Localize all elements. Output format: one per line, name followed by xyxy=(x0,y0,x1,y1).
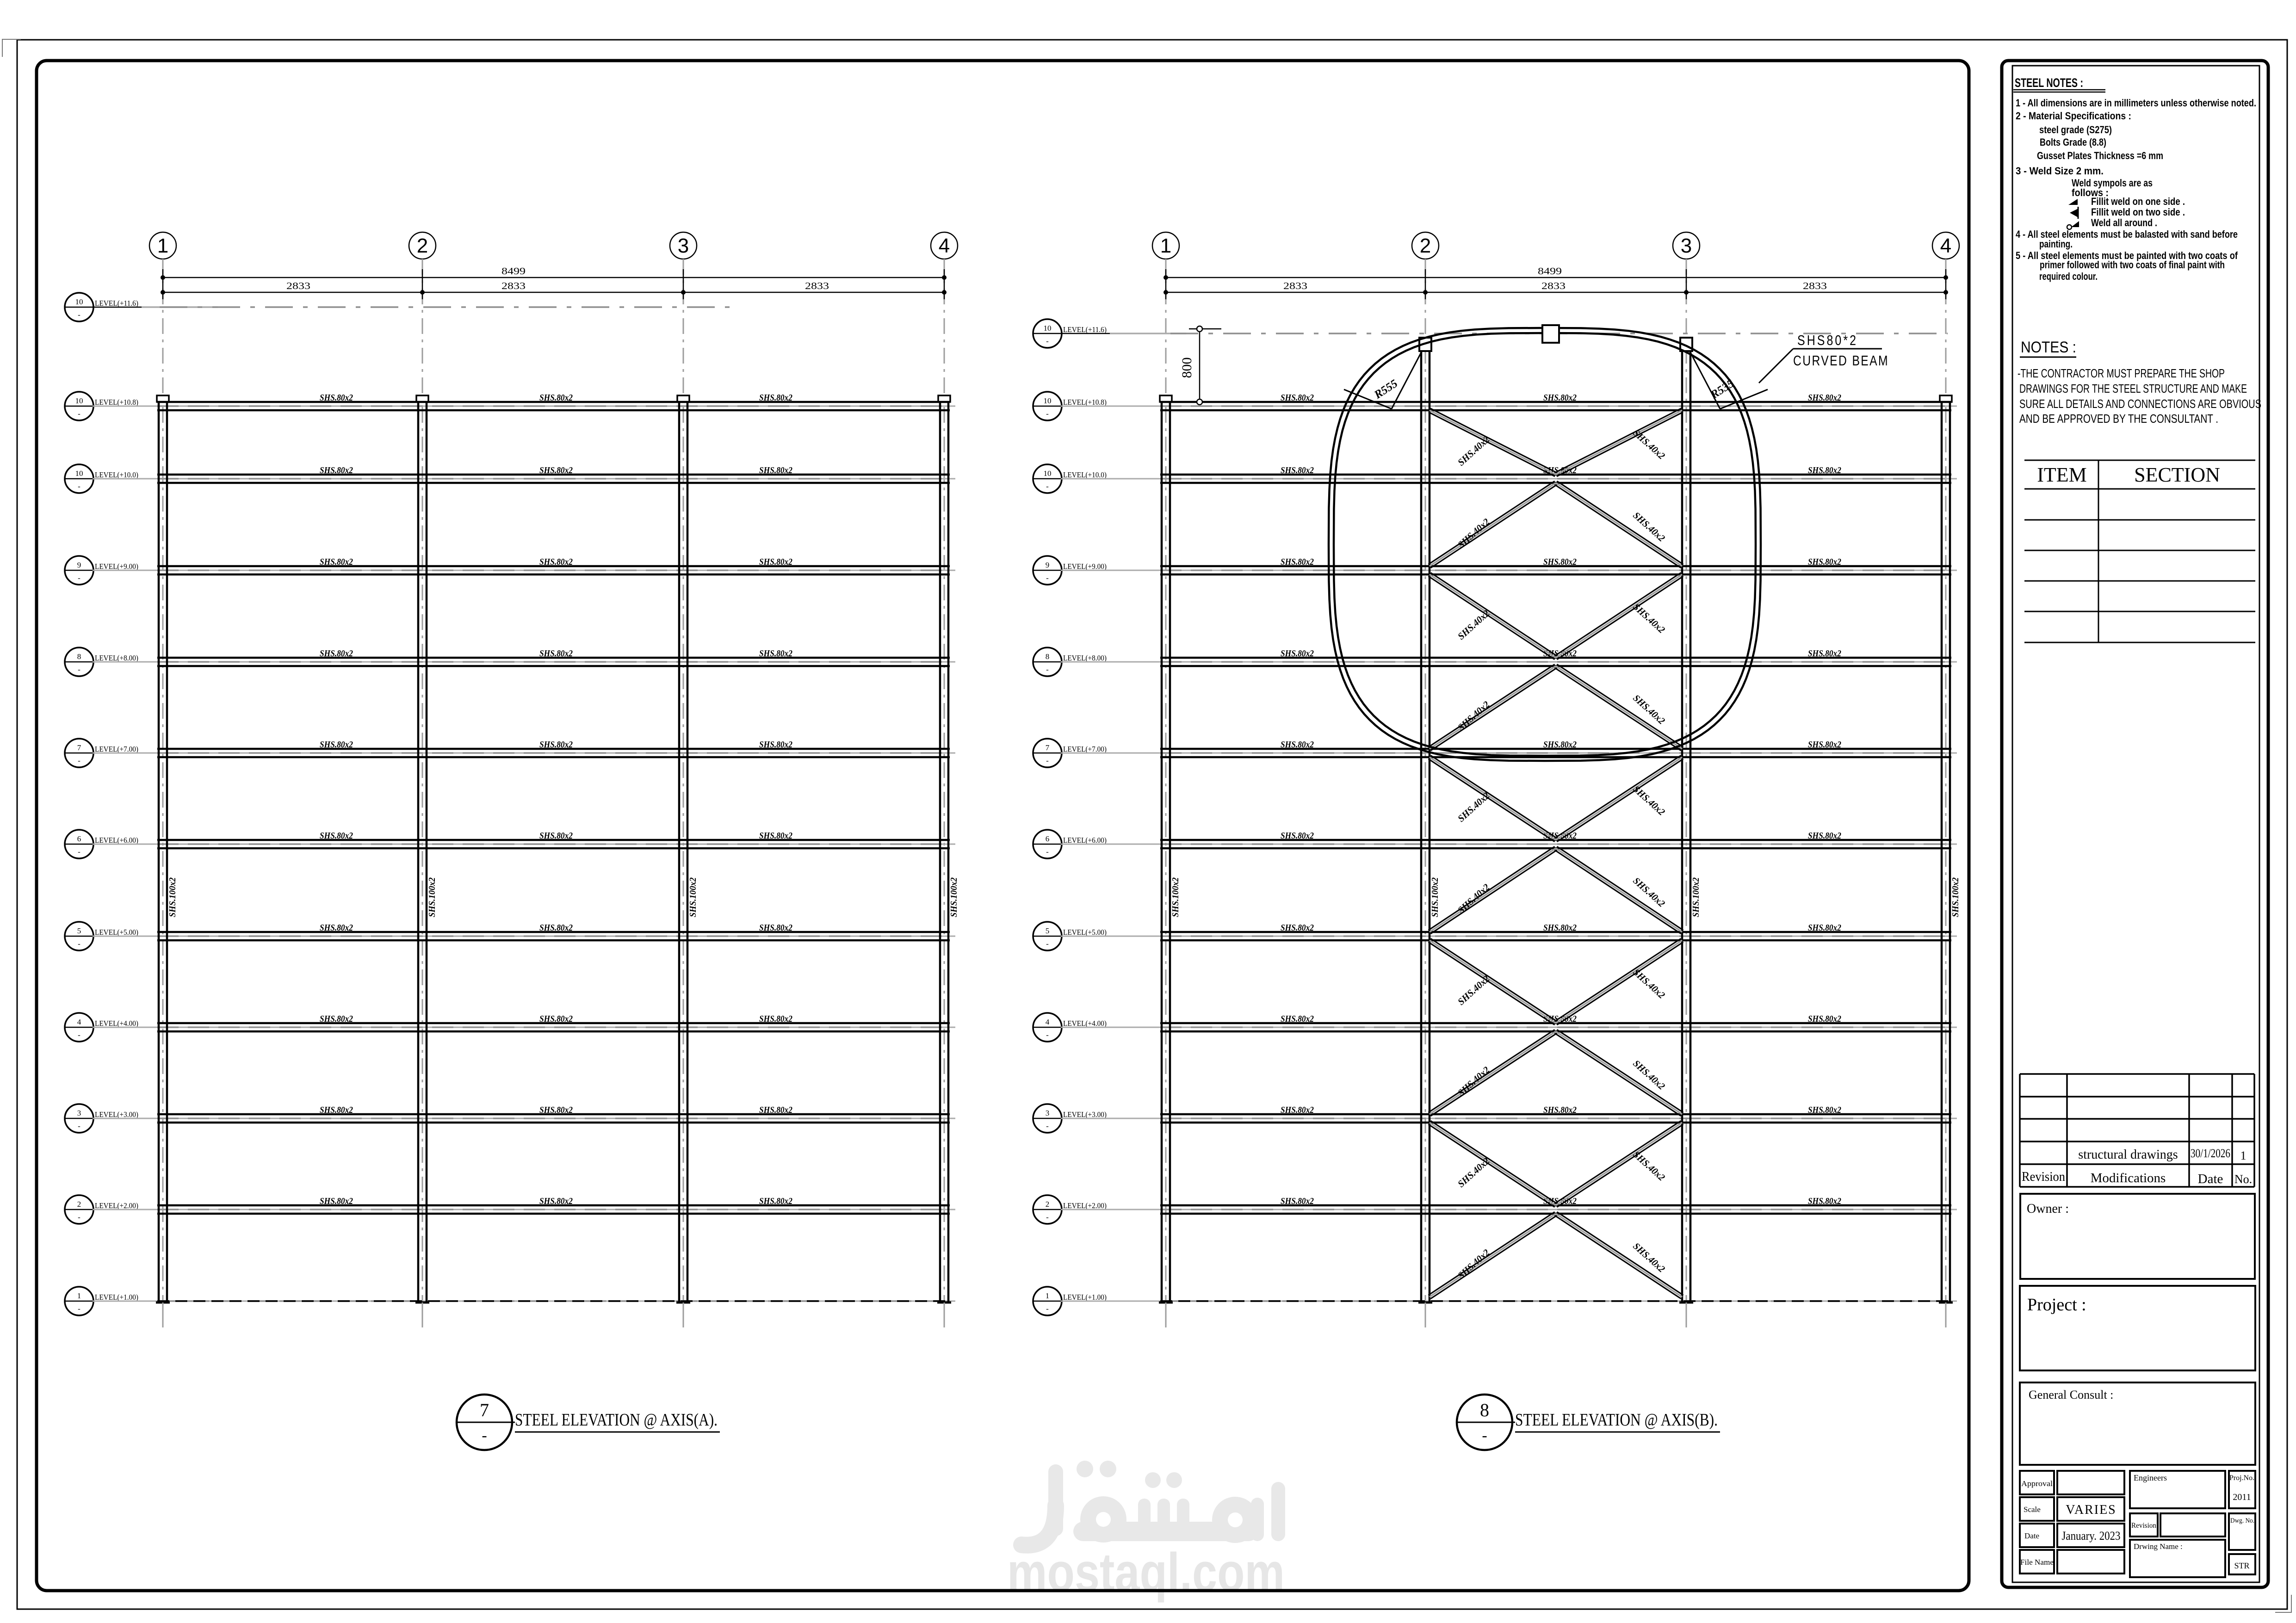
svg-text:SHS.80x2: SHS.80x2 xyxy=(759,831,792,841)
svg-text:-: - xyxy=(78,1304,80,1313)
svg-text:LEVEL(+9.00): LEVEL(+9.00) xyxy=(95,562,138,571)
svg-text:2: 2 xyxy=(1046,1200,1050,1209)
svg-text:LEVEL(+4.00): LEVEL(+4.00) xyxy=(95,1019,138,1028)
svg-text:-: - xyxy=(78,1122,80,1130)
svg-text:SHS.80x2: SHS.80x2 xyxy=(1808,557,1841,567)
svg-text:7: 7 xyxy=(77,743,81,752)
svg-text:-: - xyxy=(78,847,80,856)
svg-text:-: - xyxy=(1046,847,1049,856)
svg-text:SHS.100x2: SHS.100x2 xyxy=(1170,877,1181,917)
svg-text:SHS.100x2: SHS.100x2 xyxy=(167,877,178,917)
svg-text:LEVEL(+5.00): LEVEL(+5.00) xyxy=(1063,928,1107,937)
svg-text:SHS.80x2: SHS.80x2 xyxy=(320,393,353,403)
svg-text:SHS.80x2: SHS.80x2 xyxy=(1808,393,1841,403)
svg-text:LEVEL(+2.00): LEVEL(+2.00) xyxy=(95,1201,138,1210)
svg-text:Engineers: Engineers xyxy=(2134,1473,2167,1482)
svg-text:SHS.80x2: SHS.80x2 xyxy=(320,1014,353,1024)
svg-text:-: - xyxy=(1046,756,1049,765)
svg-text:LEVEL(+11.6): LEVEL(+11.6) xyxy=(95,299,138,308)
svg-text:2011: 2011 xyxy=(2233,1492,2251,1502)
svg-text:SHS.100x2: SHS.100x2 xyxy=(949,877,959,917)
svg-text:SHS.80x2: SHS.80x2 xyxy=(1543,923,1577,933)
svg-text:SHS.80x2: SHS.80x2 xyxy=(320,465,353,475)
svg-text:8: 8 xyxy=(1480,1400,1489,1420)
svg-text:SHS.80x2: SHS.80x2 xyxy=(1281,831,1314,841)
svg-text:2833: 2833 xyxy=(1283,280,1307,291)
svg-text:1: 1 xyxy=(1160,235,1171,257)
svg-text:File Name: File Name xyxy=(2020,1558,2054,1567)
svg-text:SHS.80x2: SHS.80x2 xyxy=(759,557,792,567)
svg-text:SHS.80x2: SHS.80x2 xyxy=(1281,393,1314,403)
svg-text:9: 9 xyxy=(77,561,81,569)
svg-text:SHS.80x2: SHS.80x2 xyxy=(1281,740,1314,750)
svg-text:SHS.80x2: SHS.80x2 xyxy=(539,1105,573,1115)
svg-text:Dwg. No.: Dwg. No. xyxy=(2230,1517,2254,1524)
svg-text:SHS.80x2: SHS.80x2 xyxy=(1808,923,1841,933)
svg-text:2833: 2833 xyxy=(1803,280,1827,291)
svg-text:Fillit weld on two side .: Fillit weld on two side . xyxy=(2091,206,2185,218)
svg-text:-: - xyxy=(1046,1031,1049,1039)
svg-text:January. 2023: January. 2023 xyxy=(2062,1529,2121,1543)
svg-text:2833: 2833 xyxy=(501,280,526,291)
svg-text:General Consult :: General Consult : xyxy=(2029,1388,2113,1401)
svg-text:VARIES: VARIES xyxy=(2066,1503,2117,1517)
svg-text:LEVEL(+7.00): LEVEL(+7.00) xyxy=(95,745,138,753)
svg-text:Bolts Grade (8.8): Bolts Grade (8.8) xyxy=(2040,136,2106,148)
svg-text:-: - xyxy=(1482,1427,1487,1444)
svg-text:SHS.80x2: SHS.80x2 xyxy=(1281,1014,1314,1024)
svg-text:SHS.80x2: SHS.80x2 xyxy=(759,923,792,933)
svg-text:-: - xyxy=(1046,574,1049,582)
svg-text:-: - xyxy=(1046,1304,1049,1313)
svg-text:SHS.80x2: SHS.80x2 xyxy=(320,923,353,933)
svg-text:SHS.80x2: SHS.80x2 xyxy=(759,393,792,403)
svg-text:LEVEL(+1.00): LEVEL(+1.00) xyxy=(1063,1293,1107,1302)
svg-text:SHS.80x2: SHS.80x2 xyxy=(759,1105,792,1115)
svg-text:Owner :: Owner : xyxy=(2027,1202,2069,1216)
svg-text:-: - xyxy=(78,756,80,765)
svg-text:SHS.80x2: SHS.80x2 xyxy=(539,923,573,933)
svg-text:SHS.80x2: SHS.80x2 xyxy=(320,831,353,841)
svg-text:-: - xyxy=(78,409,80,418)
svg-text:-THE CONTRACTOR MUST PREPARE T: -THE CONTRACTOR MUST PREPARE THE SHOP xyxy=(2018,366,2225,380)
svg-text:SHS80*2: SHS80*2 xyxy=(1797,332,1858,348)
svg-text:SHS.80x2: SHS.80x2 xyxy=(1808,1196,1841,1206)
svg-text:10: 10 xyxy=(75,396,83,405)
svg-text:SHS.80x2: SHS.80x2 xyxy=(1281,465,1314,475)
svg-text:3: 3 xyxy=(77,1109,81,1117)
svg-text:4: 4 xyxy=(939,235,950,257)
svg-text:-: - xyxy=(1046,337,1049,346)
svg-text:SHS.80x2: SHS.80x2 xyxy=(539,1014,573,1024)
svg-text:1: 1 xyxy=(77,1291,81,1300)
svg-text:LEVEL(+10.8): LEVEL(+10.8) xyxy=(1063,398,1107,407)
svg-text:-: - xyxy=(78,665,80,674)
svg-text:primer followed with two coats: primer followed with two coats of final … xyxy=(2040,259,2225,271)
svg-text:mostaql.com: mostaql.com xyxy=(1007,1542,1285,1603)
svg-text:STEEL NOTES :: STEEL NOTES : xyxy=(2015,76,2083,90)
svg-text:Approval: Approval xyxy=(2021,1479,2053,1488)
svg-text:2 - Material Specifications :: 2 - Material Specifications : xyxy=(2016,110,2131,122)
svg-text:LEVEL(+2.00): LEVEL(+2.00) xyxy=(1063,1201,1107,1210)
svg-text:SURE ALL DETAILS AND CONNECTI: SURE ALL DETAILS AND CONNECTIONS ARE OBV… xyxy=(2019,397,2261,411)
svg-text:3 - Weld Size 2 mm.: 3 - Weld Size 2 mm. xyxy=(2016,165,2104,177)
svg-text:LEVEL(+10.0): LEVEL(+10.0) xyxy=(95,470,138,479)
svg-text:LEVEL(+6.00): LEVEL(+6.00) xyxy=(1063,836,1107,845)
svg-text:SHS.80x2: SHS.80x2 xyxy=(539,831,573,841)
svg-text:Revision: Revision xyxy=(2131,1522,2156,1530)
svg-text:-: - xyxy=(78,1031,80,1039)
svg-text:SHS.80x2: SHS.80x2 xyxy=(539,465,573,475)
svg-text:-: - xyxy=(78,939,80,948)
svg-text:Proj.No.: Proj.No. xyxy=(2229,1474,2254,1482)
svg-text:SHS.80x2: SHS.80x2 xyxy=(1808,831,1841,841)
svg-text:LEVEL(+7.00): LEVEL(+7.00) xyxy=(1063,745,1107,753)
svg-text:SHS.80x2: SHS.80x2 xyxy=(320,1105,353,1115)
svg-text:SHS.80x2: SHS.80x2 xyxy=(320,740,353,750)
svg-text:LEVEL(+1.00): LEVEL(+1.00) xyxy=(95,1293,138,1302)
svg-text:SHS.80x2: SHS.80x2 xyxy=(1808,1105,1841,1115)
svg-text:SHS.80x2: SHS.80x2 xyxy=(1281,557,1314,567)
svg-text:-: - xyxy=(78,482,80,491)
svg-text:SHS.80x2: SHS.80x2 xyxy=(1281,648,1314,659)
svg-text:1: 1 xyxy=(2240,1149,2246,1162)
svg-text:LEVEL(+11.6): LEVEL(+11.6) xyxy=(1063,325,1107,334)
svg-text:-: - xyxy=(1046,1213,1049,1222)
svg-text:10: 10 xyxy=(1044,324,1052,333)
svg-text:SHS.80x2: SHS.80x2 xyxy=(759,648,792,659)
svg-text:30/1/2026: 30/1/2026 xyxy=(2191,1147,2230,1160)
svg-text:SHS.80x2: SHS.80x2 xyxy=(1281,1105,1314,1115)
svg-text:SHS.80x2: SHS.80x2 xyxy=(320,557,353,567)
svg-text:LEVEL(+10.0): LEVEL(+10.0) xyxy=(1063,470,1107,479)
svg-text:10: 10 xyxy=(75,297,83,306)
svg-text:LEVEL(+3.00): LEVEL(+3.00) xyxy=(95,1110,138,1119)
svg-text:10: 10 xyxy=(75,469,83,478)
svg-text:SHS.80x2: SHS.80x2 xyxy=(1808,465,1841,475)
svg-text:Fillit weld on one side .: Fillit weld on one side . xyxy=(2091,196,2185,207)
svg-text:2: 2 xyxy=(417,235,428,257)
svg-text:SHS.80x2: SHS.80x2 xyxy=(539,740,573,750)
svg-text:3: 3 xyxy=(1046,1109,1050,1117)
svg-text:SHS.80x2: SHS.80x2 xyxy=(1808,1014,1841,1024)
svg-text:SHS.80x2: SHS.80x2 xyxy=(1808,648,1841,659)
svg-text:-: - xyxy=(1046,939,1049,948)
svg-text:SHS.80x2: SHS.80x2 xyxy=(759,740,792,750)
svg-text:-: - xyxy=(1046,482,1049,491)
svg-text:6: 6 xyxy=(77,834,81,843)
svg-text:SHS.80x2: SHS.80x2 xyxy=(1281,1196,1314,1206)
svg-text:2833: 2833 xyxy=(805,280,829,291)
svg-text:SHS.100x2: SHS.100x2 xyxy=(688,877,698,917)
svg-text:3: 3 xyxy=(678,235,689,257)
svg-text:SHS.80x2: SHS.80x2 xyxy=(320,648,353,659)
svg-text:SHS.80x2: SHS.80x2 xyxy=(759,465,792,475)
svg-text:Weld all around .: Weld all around . xyxy=(2091,217,2157,228)
svg-text:SHS.80x2: SHS.80x2 xyxy=(1281,923,1314,933)
svg-text:No.: No. xyxy=(2234,1173,2252,1186)
svg-text:CURVED BEAM: CURVED BEAM xyxy=(1793,352,1889,369)
svg-text:-: - xyxy=(78,1213,80,1222)
svg-text:8: 8 xyxy=(77,652,81,661)
svg-text:required colour.: required colour. xyxy=(2039,271,2098,282)
svg-text:SHS.80x2: SHS.80x2 xyxy=(539,648,573,659)
svg-text:SHS.80x2: SHS.80x2 xyxy=(1543,740,1577,750)
svg-text:7: 7 xyxy=(1046,743,1050,752)
svg-text:STEEL ELEVATION @ AXIS(A).: STEEL ELEVATION @ AXIS(A). xyxy=(515,1410,718,1430)
svg-text:2: 2 xyxy=(77,1200,81,1209)
svg-text:SECTION: SECTION xyxy=(2134,463,2220,486)
svg-text:9: 9 xyxy=(1046,561,1050,569)
svg-text:8499: 8499 xyxy=(501,265,526,277)
svg-text:1: 1 xyxy=(157,235,168,257)
svg-text:5: 5 xyxy=(77,926,81,935)
svg-text:SHS.80x2: SHS.80x2 xyxy=(1543,1105,1577,1115)
svg-text:Date: Date xyxy=(2198,1172,2223,1186)
svg-text:LEVEL(+3.00): LEVEL(+3.00) xyxy=(1063,1110,1107,1119)
svg-text:SHS.80x2: SHS.80x2 xyxy=(759,1196,792,1206)
svg-text:SHS.100x2: SHS.100x2 xyxy=(1691,877,1701,917)
svg-text:LEVEL(+8.00): LEVEL(+8.00) xyxy=(95,654,138,662)
svg-text:SHS.80x2: SHS.80x2 xyxy=(1543,557,1577,567)
svg-text:LEVEL(+10.8): LEVEL(+10.8) xyxy=(95,398,138,407)
svg-text:2833: 2833 xyxy=(1541,280,1566,291)
svg-text:-: - xyxy=(1046,665,1049,674)
svg-text:LEVEL(+5.00): LEVEL(+5.00) xyxy=(95,928,138,937)
svg-text:Scale: Scale xyxy=(2024,1505,2041,1514)
svg-text:SHS.100x2: SHS.100x2 xyxy=(1950,877,1961,917)
svg-text:800: 800 xyxy=(1179,358,1194,378)
svg-text:STR: STR xyxy=(2234,1561,2249,1570)
svg-text:-: - xyxy=(78,310,80,319)
svg-text:SHS.80x2: SHS.80x2 xyxy=(539,557,573,567)
svg-text:Project :: Project : xyxy=(2027,1295,2086,1314)
svg-text:-: - xyxy=(482,1427,487,1444)
svg-text:5: 5 xyxy=(1046,926,1050,935)
svg-text:SHS.80x2: SHS.80x2 xyxy=(539,393,573,403)
svg-text:8: 8 xyxy=(1046,652,1050,661)
svg-text:1 - All dimensions are in mill: 1 - All dimensions are in millimeters un… xyxy=(2016,97,2256,109)
svg-text:LEVEL(+9.00): LEVEL(+9.00) xyxy=(1063,562,1107,571)
svg-text:3: 3 xyxy=(1681,235,1692,257)
svg-text:Drwing Name :: Drwing Name : xyxy=(2134,1542,2183,1551)
svg-text:-: - xyxy=(1046,409,1049,418)
svg-text:AND BE APPROVED BY THE CONSUL: AND BE APPROVED BY THE CONSULTANT . xyxy=(2019,412,2218,426)
svg-text:structural drawings: structural drawings xyxy=(2078,1148,2178,1162)
svg-text:ITEM: ITEM xyxy=(2037,463,2087,486)
svg-text:-: - xyxy=(1046,1122,1049,1130)
svg-text:10: 10 xyxy=(1044,469,1052,478)
svg-text:8499: 8499 xyxy=(1538,265,1562,277)
svg-text:4: 4 xyxy=(77,1018,81,1026)
svg-text:-: - xyxy=(78,574,80,582)
svg-text:10: 10 xyxy=(1044,396,1052,405)
svg-text:STEEL ELEVATION @ AXIS(B).: STEEL ELEVATION @ AXIS(B). xyxy=(1515,1410,1718,1430)
svg-text:painting.: painting. xyxy=(2039,238,2073,250)
svg-text:SHS.80x2: SHS.80x2 xyxy=(759,1014,792,1024)
svg-text:2833: 2833 xyxy=(286,280,310,291)
svg-text:SHS.80x2: SHS.80x2 xyxy=(320,1196,353,1206)
svg-text:DRAWINGS FOR THE STEEL STRUCTU: DRAWINGS FOR THE STEEL STRUCTURE AND MAK… xyxy=(2019,382,2247,395)
svg-text:SHS.100x2: SHS.100x2 xyxy=(1430,877,1440,917)
svg-text:7: 7 xyxy=(480,1400,489,1420)
svg-text:LEVEL(+6.00): LEVEL(+6.00) xyxy=(95,836,138,845)
svg-text:SHS.80x2: SHS.80x2 xyxy=(1543,393,1577,403)
svg-text:SHS.100x2: SHS.100x2 xyxy=(427,877,437,917)
svg-text:6: 6 xyxy=(1046,834,1050,843)
svg-text:2: 2 xyxy=(1420,235,1431,257)
svg-text:Gusset Plates Thickness =6 mm: Gusset Plates Thickness =6 mm xyxy=(2037,150,2163,161)
svg-text:steel grade (S275): steel grade (S275) xyxy=(2039,124,2112,136)
svg-text:Revision: Revision xyxy=(2022,1169,2065,1184)
svg-text:1: 1 xyxy=(1046,1291,1050,1300)
svg-text:LEVEL(+8.00): LEVEL(+8.00) xyxy=(1063,654,1107,662)
svg-text:4: 4 xyxy=(1046,1018,1050,1026)
svg-text:Modifications: Modifications xyxy=(2091,1171,2166,1185)
svg-text:NOTES :: NOTES : xyxy=(2021,339,2076,356)
svg-text:LEVEL(+4.00): LEVEL(+4.00) xyxy=(1063,1019,1107,1028)
svg-text:SHS.80x2: SHS.80x2 xyxy=(539,1196,573,1206)
svg-text:Date: Date xyxy=(2024,1531,2039,1540)
svg-text:SHS.80x2: SHS.80x2 xyxy=(1808,740,1841,750)
svg-text:4: 4 xyxy=(1940,235,1951,257)
